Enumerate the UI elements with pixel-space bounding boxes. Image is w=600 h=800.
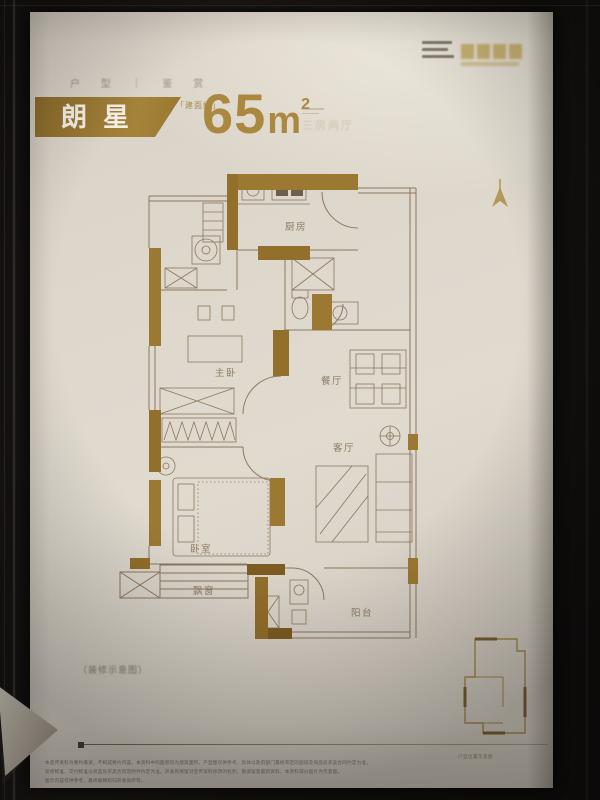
floor-plan: 厨房 主卧 餐厅 客厅 卧室 飘窗 阳台: [100, 160, 440, 660]
area-value: 65: [202, 86, 266, 142]
scale-bar-line: [84, 744, 548, 745]
frame-highlight: [586, 0, 588, 800]
area-unit: m: [267, 102, 301, 140]
north-arrow-icon: [488, 177, 512, 211]
area-figure: 65 m 2: [202, 86, 310, 142]
frame-highlight: [4, 0, 5, 800]
room-label-dining: 餐厅: [321, 375, 343, 387]
disclaimer-line: 本宣传资料为要约邀请，不构成要约内容。本资料中的面积均为建筑面积，户型图仅供参考…: [45, 758, 547, 767]
disclaimer-line: 图示内容仅供参考，最终解释权归开发商所有。: [45, 776, 547, 785]
disclaimer-line: 装修标准、交付标准以商品房买卖合同及附件约定为准。开发商保留对宣传资料修改的权利…: [45, 767, 547, 776]
frame-highlight: [0, 5, 600, 6]
room-label-balcony: 阳台: [351, 607, 373, 619]
unit-name-banner: 朗星: [35, 97, 181, 137]
room-label-bay-window: 飘窗: [193, 585, 215, 597]
frame-highlight: [13, 0, 15, 800]
decoration-note: （装修示意图）: [78, 663, 148, 676]
brand-logo: [422, 32, 540, 82]
unit-name: 朗星: [61, 102, 145, 132]
room-label-bedroom: 卧室: [190, 543, 212, 555]
brand-gold-seal-icon: [461, 32, 522, 82]
room-label-living: 客厅: [333, 442, 355, 454]
scale-bar: [78, 741, 548, 748]
key-plan: [445, 627, 545, 752]
series-label: 户 型 ｜ 鉴 赏: [70, 75, 212, 90]
floorplan-poster: 户 型 ｜ 鉴 赏 朗星 「建面约」 65 m 2 三房两厅: [30, 12, 553, 788]
room-label-kitchen: 厨房: [285, 221, 307, 233]
brand-tagline-lines: [422, 32, 454, 82]
room-label-master-bedroom: 主卧: [215, 367, 237, 379]
framed-poster-photo: 户 型 ｜ 鉴 赏 朗星 「建面约」 65 m 2 三房两厅: [0, 0, 600, 800]
disclaimer: 本宣传资料为要约邀请，不构成要约内容。本资料中的面积均为建筑面积，户型图仅供参考…: [45, 758, 547, 785]
rooms-hint: 三房两厅: [302, 108, 362, 133]
